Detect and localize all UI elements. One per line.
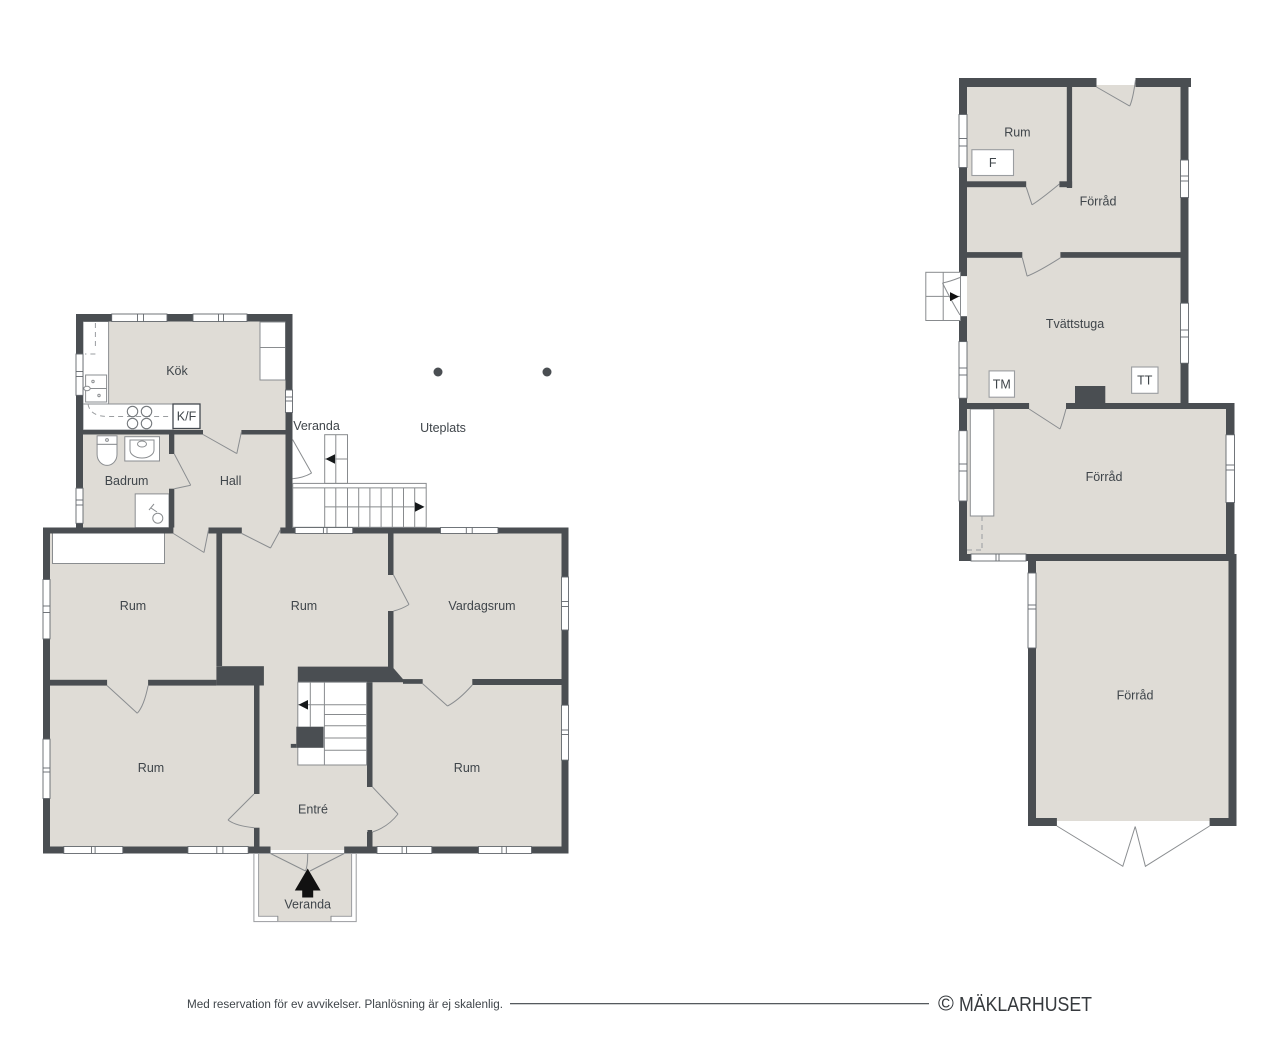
- svg-text:Förråd: Förråd: [1117, 689, 1154, 703]
- svg-text:F: F: [989, 156, 997, 170]
- svg-text:Rum: Rum: [1004, 126, 1030, 140]
- svg-text:TM: TM: [993, 378, 1011, 392]
- svg-text:K/F: K/F: [177, 410, 197, 424]
- svg-text:Rum: Rum: [454, 761, 480, 775]
- svg-text:Kök: Kök: [166, 364, 188, 378]
- svg-text:Rum: Rum: [138, 761, 164, 775]
- svg-text:Badrum: Badrum: [105, 474, 149, 488]
- svg-text:Uteplats: Uteplats: [420, 421, 466, 435]
- svg-text:Veranda: Veranda: [293, 419, 340, 433]
- svg-text:Förråd: Förråd: [1080, 195, 1117, 209]
- svg-text:Rum: Rum: [120, 599, 146, 613]
- svg-text:Rum: Rum: [291, 599, 317, 613]
- svg-text:TT: TT: [1137, 374, 1153, 388]
- svg-text:Tvättstuga: Tvättstuga: [1046, 317, 1104, 331]
- svg-text:Veranda: Veranda: [284, 898, 331, 912]
- svg-text:Hall: Hall: [220, 474, 242, 488]
- svg-text:Entré: Entré: [298, 803, 328, 817]
- svg-text:MÄKLARHUSET: MÄKLARHUSET: [959, 993, 1092, 1016]
- svg-text:Vardagsrum: Vardagsrum: [448, 599, 515, 613]
- svg-text:Med reservation för ev avvikel: Med reservation för ev avvikelser. Planl…: [187, 999, 503, 1011]
- svg-text:Förråd: Förråd: [1086, 470, 1123, 484]
- svg-text:©: ©: [938, 992, 954, 1016]
